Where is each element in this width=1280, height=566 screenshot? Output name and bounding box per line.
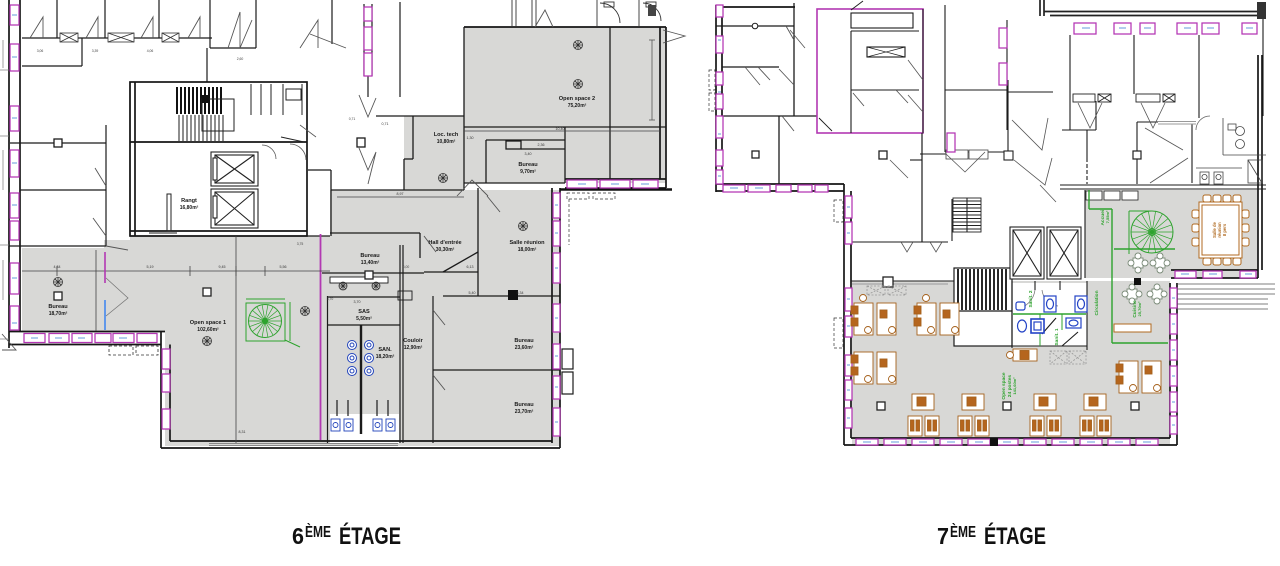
svg-text:5,19: 5,19 (147, 265, 154, 269)
svg-text:13,40m²: 13,40m² (361, 260, 380, 266)
svg-text:Rangt: Rangt (181, 198, 197, 204)
svg-text:4,34: 4,34 (54, 265, 61, 269)
svg-text:4,06: 4,06 (147, 49, 154, 53)
svg-text:1,30: 1,30 (467, 136, 474, 140)
svg-text:Sanit. 2: Sanit. 2 (1028, 290, 1034, 307)
svg-text:Bureau: Bureau (48, 304, 68, 310)
svg-text:6: 6 (292, 523, 304, 549)
svg-text:30,30m²: 30,30m² (436, 247, 455, 253)
svg-text:Bureau: Bureau (360, 253, 380, 259)
svg-text:2,60: 2,60 (237, 57, 244, 61)
svg-text:8,97: 8,97 (397, 192, 404, 196)
svg-text:5,50m²: 5,50m² (356, 316, 372, 322)
svg-text:8 pers: 8 pers (1222, 223, 1227, 236)
svg-text:Salle réunion: Salle réunion (509, 240, 545, 246)
svg-text:0,71: 0,71 (349, 117, 356, 121)
svg-text:10,80m²: 10,80m² (437, 139, 456, 145)
svg-text:9,45: 9,45 (219, 265, 226, 269)
svg-text:Open space 1: Open space 1 (190, 320, 226, 326)
svg-text:16,80m²: 16,80m² (180, 205, 199, 211)
svg-text:3,39: 3,39 (92, 49, 99, 53)
svg-text:10,40: 10,40 (556, 127, 565, 131)
svg-text:75,20m²: 75,20m² (568, 103, 587, 109)
svg-text:Circulation: Circulation (1094, 290, 1100, 315)
svg-text:ÉTAGE: ÉTAGE (984, 522, 1046, 550)
svg-text:18,70m²: 18,70m² (49, 311, 68, 317)
svg-text:SAN.: SAN. (378, 347, 392, 353)
svg-text:Bureau: Bureau (518, 162, 538, 168)
svg-text:3,75: 3,75 (297, 242, 304, 246)
svg-text:2,36: 2,36 (538, 143, 545, 147)
svg-text:ÈME: ÈME (950, 522, 976, 541)
svg-text:25,70m²: 25,70m² (1137, 301, 1142, 317)
svg-text:Loc. tech: Loc. tech (434, 132, 459, 138)
svg-text:SAS: SAS (358, 309, 370, 315)
svg-text:141,60m²: 141,60m² (1012, 377, 1017, 395)
svg-text:Couloir: Couloir (403, 338, 423, 344)
svg-text:Sanit. 1: Sanit. 1 (1054, 328, 1060, 345)
svg-text:5,34: 5,34 (517, 291, 524, 295)
svg-text:102,60m²: 102,60m² (197, 327, 219, 333)
svg-text:18,20m²: 18,20m² (376, 354, 395, 360)
svg-text:7: 7 (937, 523, 949, 549)
svg-text:3,40: 3,40 (525, 152, 532, 156)
svg-text:5,40: 5,40 (469, 291, 476, 295)
svg-text:6,13: 6,13 (467, 265, 474, 269)
svg-text:Open space: Open space (1001, 372, 1007, 400)
svg-text:Bureau: Bureau (514, 338, 534, 344)
svg-text:6,00: 6,00 (403, 265, 410, 269)
svg-text:ÈME: ÈME (305, 522, 331, 541)
svg-text:3,06: 3,06 (37, 49, 44, 53)
svg-text:18,00m²: 18,00m² (518, 247, 537, 253)
svg-text:ÉTAGE: ÉTAGE (339, 522, 401, 550)
svg-text:12,90m²: 12,90m² (404, 345, 423, 351)
svg-text:3,70: 3,70 (327, 297, 334, 301)
svg-text:9,70m²: 9,70m² (520, 169, 536, 175)
svg-text:Hall d'entrée: Hall d'entrée (428, 240, 461, 246)
svg-text:23,70m²: 23,70m² (515, 409, 534, 415)
svg-text:8,31: 8,31 (239, 430, 246, 434)
svg-text:Bureau: Bureau (514, 402, 534, 408)
svg-text:5,56: 5,56 (280, 265, 287, 269)
svg-text:7,55m²: 7,55m² (1105, 210, 1110, 223)
svg-text:3,70: 3,70 (354, 300, 361, 304)
svg-text:0,71: 0,71 (382, 122, 389, 126)
svg-text:Open space 2: Open space 2 (559, 96, 595, 102)
svg-text:23,60m²: 23,60m² (515, 345, 534, 351)
